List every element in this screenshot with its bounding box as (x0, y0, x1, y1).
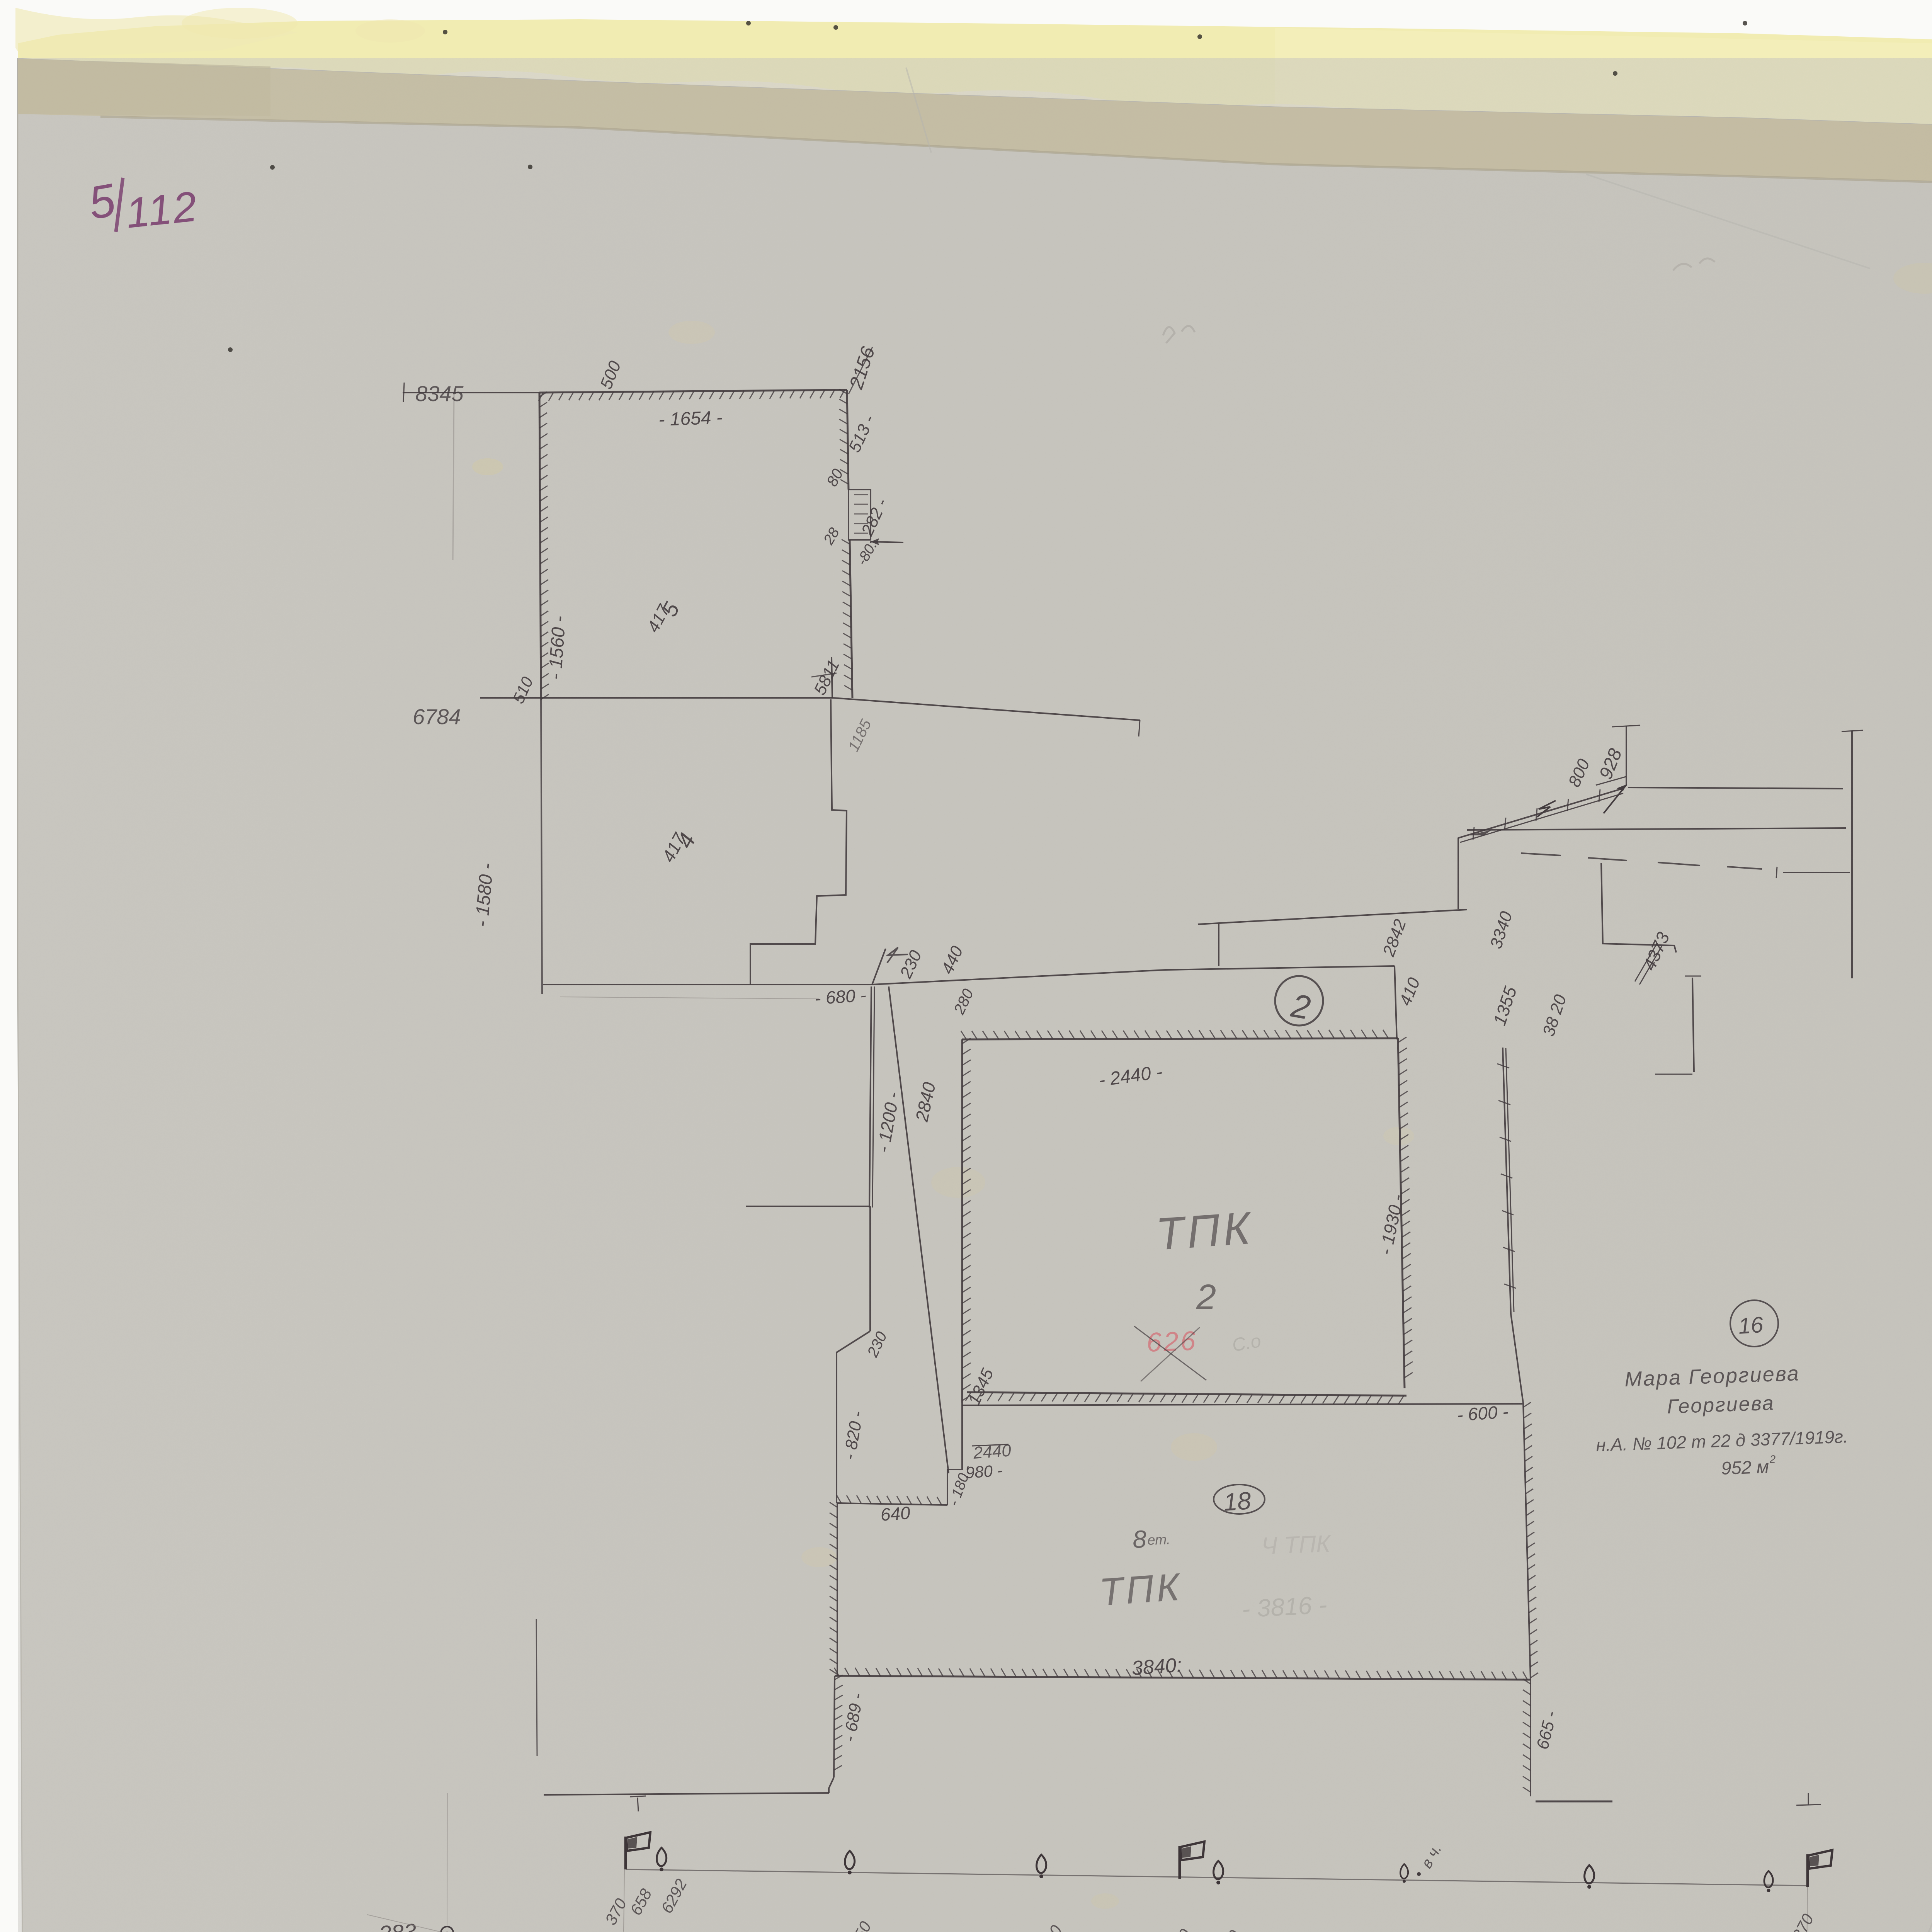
svg-text:112: 112 (124, 182, 201, 237)
